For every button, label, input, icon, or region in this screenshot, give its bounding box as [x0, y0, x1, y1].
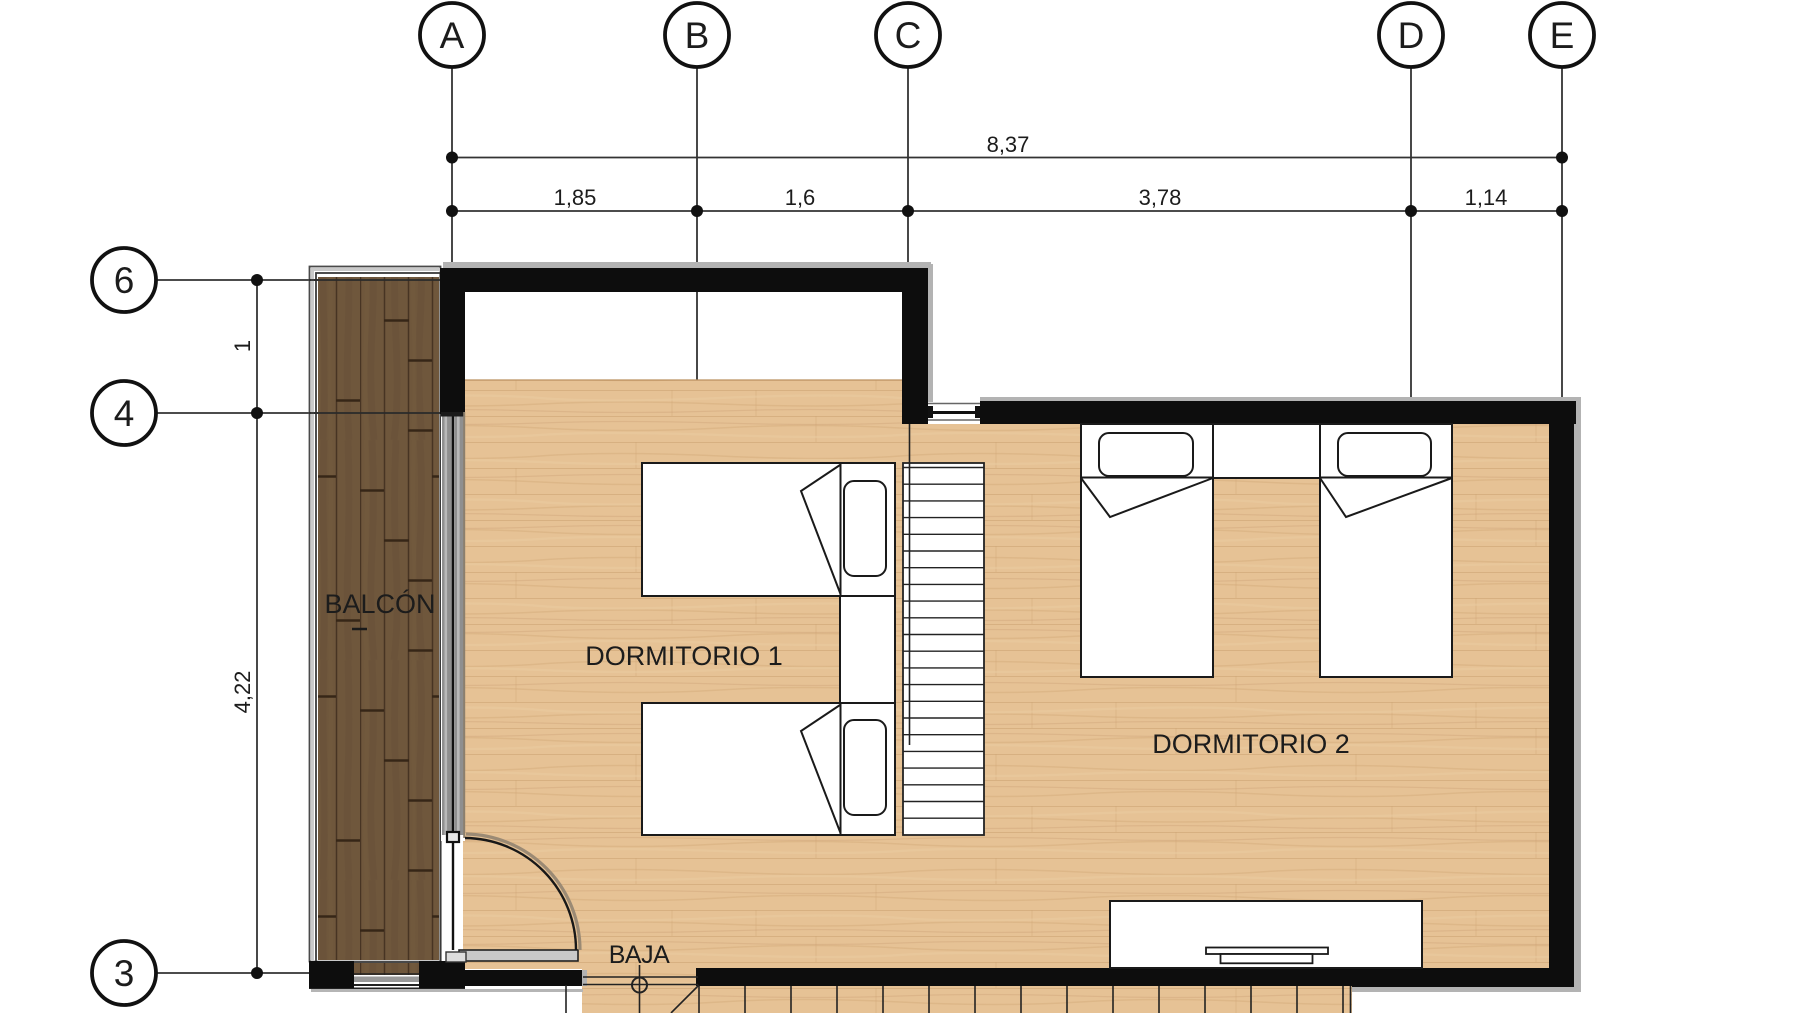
svg-text:B: B — [685, 15, 710, 56]
svg-text:BALCÓN: BALCÓN — [324, 588, 435, 619]
svg-text:8,37: 8,37 — [987, 132, 1030, 157]
svg-text:D: D — [1398, 15, 1425, 56]
svg-text:C: C — [895, 15, 922, 56]
svg-text:BAJA: BAJA — [609, 941, 670, 969]
svg-text:1: 1 — [230, 340, 255, 352]
svg-text:3,78: 3,78 — [1139, 185, 1182, 210]
svg-text:4,22: 4,22 — [230, 671, 255, 714]
svg-text:6: 6 — [114, 260, 135, 301]
svg-text:4: 4 — [114, 393, 135, 434]
svg-text:1,6: 1,6 — [785, 185, 816, 210]
svg-text:A: A — [440, 15, 465, 56]
svg-text:1,85: 1,85 — [554, 185, 597, 210]
svg-text:DORMITORIO 1: DORMITORIO 1 — [585, 641, 783, 671]
svg-text:1,14: 1,14 — [1465, 185, 1508, 210]
svg-text:E: E — [1550, 15, 1575, 56]
svg-text:DORMITORIO 2: DORMITORIO 2 — [1152, 729, 1350, 759]
svg-text:3: 3 — [114, 953, 135, 994]
